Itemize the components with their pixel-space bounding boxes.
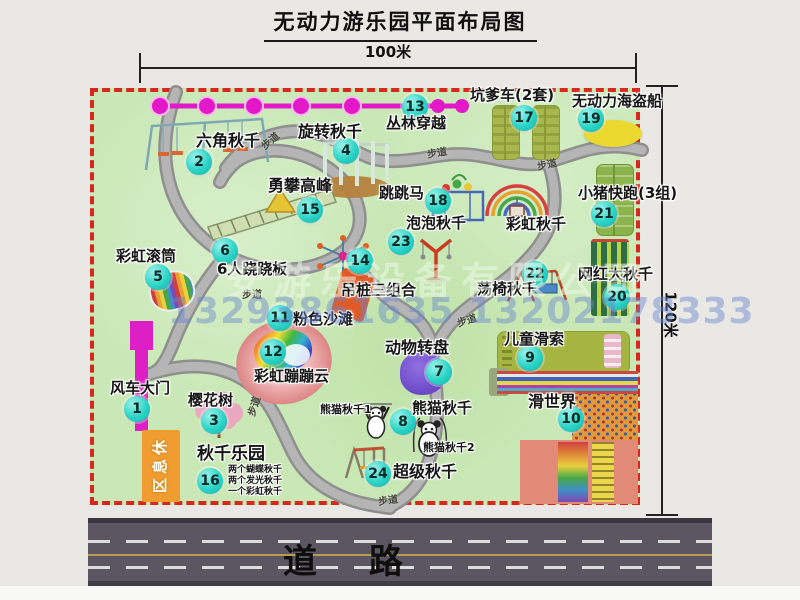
park-layout-plan: 无动力游乐园平面布局图 100米 120米 — [0, 0, 800, 600]
attraction-label-5: 彩虹滚筒 — [116, 249, 176, 265]
dimension-width-label: 100米 — [140, 41, 636, 62]
marker-3: 3 — [201, 408, 227, 434]
marker-4: 4 — [333, 138, 359, 164]
attraction-label-2: 六角秋千 — [196, 133, 260, 150]
marker-16: 16 — [197, 468, 223, 494]
marker-18: 18 — [425, 188, 451, 214]
attraction-label-23: 泡泡秋千 — [406, 216, 466, 232]
page-title: 无动力游乐园平面布局图 — [0, 6, 800, 42]
dimension-width-tick-right — [635, 53, 637, 83]
attraction-label-17: 坑爹车(2套) — [470, 88, 554, 104]
attraction-label-19: 无动力海盗船 — [572, 94, 662, 110]
marker-24: 24 — [365, 461, 391, 487]
marker-9: 9 — [517, 345, 543, 371]
rest-area-char: 休 — [153, 439, 168, 454]
attraction-label-16: 秋千乐园 — [197, 446, 265, 464]
white-cloud-trampoline — [282, 344, 310, 366]
annotation-label: 熊猫秋千1 — [320, 404, 372, 416]
yellow-slide-strip — [592, 442, 614, 502]
marker-17: 17 — [511, 105, 537, 131]
attraction-label-18: 跳跳马 — [379, 186, 424, 202]
attraction-label-21: 小猪快跑(3组) — [578, 186, 677, 202]
bottom-margin — [0, 586, 800, 600]
annotation-label: 两个发光秋千 — [228, 477, 282, 486]
marker-7: 7 — [426, 359, 452, 385]
page-title-text: 无动力游乐园平面布局图 — [264, 6, 537, 42]
marker-12: 12 — [260, 339, 286, 365]
attraction-label-3: 樱花树 — [188, 393, 233, 409]
dimension-height-tick-top — [646, 85, 678, 87]
attraction-label-1: 风车大门 — [110, 381, 170, 397]
annotation-label: 两个蝴蝶秋千 — [228, 466, 282, 475]
rainbow-slide-strip — [558, 442, 588, 502]
marker-5: 5 — [145, 264, 171, 290]
road-label: 道 路 — [283, 534, 405, 583]
marker-1: 1 — [124, 396, 150, 422]
annotation-label: 一个彩虹秋千 — [228, 488, 282, 497]
attraction-label-7: 动物转盘 — [385, 340, 449, 357]
attraction-label-15: 勇攀高峰 — [268, 178, 332, 195]
kids-zipline-ladder — [604, 334, 621, 368]
attraction-label-24: 超级秋千 — [393, 464, 457, 481]
windmill-gate-top — [130, 321, 153, 350]
rest-area-char: 息 — [153, 458, 168, 473]
trail-label: 步道 — [377, 490, 399, 508]
slide-world-lanes — [497, 371, 638, 394]
marker-15: 15 — [297, 197, 323, 223]
marker-2: 2 — [186, 149, 212, 175]
attraction-label-4: 旋转秋千 — [298, 124, 362, 141]
attraction-label-13: 丛林穿越 — [386, 116, 446, 132]
attraction-label-9: 儿童滑索 — [504, 332, 564, 348]
attraction-label-8: 熊猫秋千 — [412, 401, 472, 417]
marker-21: 21 — [591, 201, 617, 227]
annotation-label: 熊猫秋千2 — [423, 442, 475, 454]
annotation-label: 彩虹秋千 — [506, 217, 566, 233]
rest-area-char: 区 — [153, 477, 168, 492]
attraction-label-10: 滑世界 — [528, 394, 576, 411]
road: 道 路 — [88, 518, 712, 586]
rest-area: 休息区 — [142, 430, 180, 502]
watermark-phone: 13293861635 13202178333 — [168, 291, 755, 332]
attraction-label-12: 彩虹蹦蹦云 — [254, 369, 329, 385]
dimension-width-line — [140, 67, 636, 69]
dimension-width-tick-left — [139, 53, 141, 83]
dimension-height-tick-bottom — [646, 514, 678, 516]
